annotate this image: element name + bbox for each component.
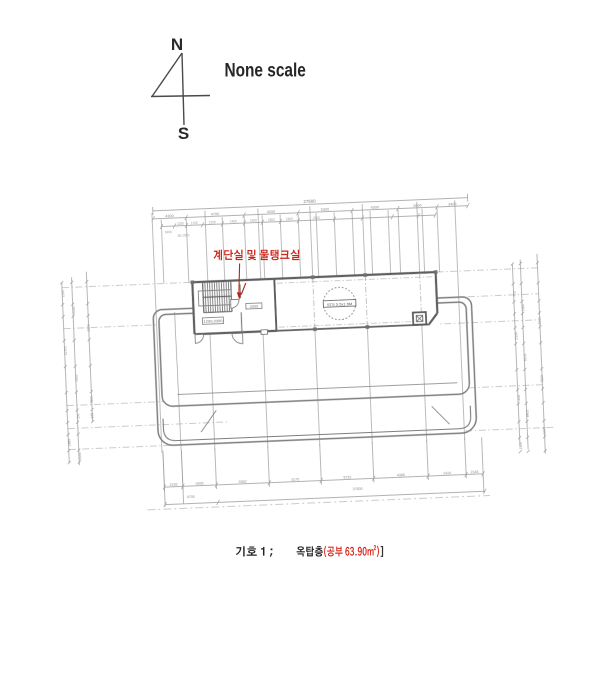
svg-text:3400: 3400 [448, 202, 457, 206]
svg-text:700: 700 [512, 291, 516, 297]
svg-text:27500: 27500 [303, 199, 316, 205]
svg-text:4200: 4200 [267, 210, 276, 214]
svg-text:7800: 7800 [89, 396, 93, 404]
svg-text:2100: 2100 [537, 317, 541, 325]
svg-text:7200: 7200 [540, 375, 544, 383]
svg-text:7200: 7200 [74, 374, 78, 382]
svg-text:1485: 1485 [67, 439, 71, 447]
svg-text:150: 150 [76, 413, 80, 419]
svg-text:5731: 5731 [343, 475, 351, 479]
svg-text:5362: 5362 [239, 479, 247, 483]
svg-text:6105: 6105 [523, 353, 527, 361]
svg-text:1410: 1410 [443, 471, 451, 475]
svg-text:2150: 2150 [72, 306, 76, 314]
svg-text:4700: 4700 [187, 495, 195, 499]
svg-text:3170: 3170 [291, 477, 299, 481]
svg-text:2100: 2100 [519, 442, 523, 450]
svg-text:2145: 2145 [470, 470, 478, 474]
svg-text:S: S [178, 124, 189, 143]
svg-text:None scale: None scale [225, 59, 307, 81]
svg-text:1500: 1500 [286, 217, 293, 221]
svg-text:4700: 4700 [211, 212, 220, 216]
svg-text:2130: 2130 [514, 332, 518, 340]
svg-text:2150: 2150 [78, 452, 82, 460]
svg-text:4300: 4300 [165, 214, 174, 218]
svg-text:80 1500: 80 1500 [178, 233, 190, 237]
svg-text:4305: 4305 [195, 481, 203, 485]
svg-text:2100: 2100 [209, 220, 216, 224]
svg-text:1150: 1150 [177, 221, 184, 225]
svg-text:3300: 3300 [250, 305, 259, 309]
svg-text:1350: 1350 [521, 303, 525, 311]
svg-text:3400: 3400 [165, 230, 172, 234]
svg-text:STS 5.5x1.5M: STS 5.5x1.5M [327, 301, 353, 307]
svg-text:975: 975 [90, 413, 94, 419]
svg-text:4300: 4300 [371, 205, 380, 209]
svg-text:1500: 1500 [250, 218, 257, 222]
svg-text:N: N [171, 35, 183, 54]
svg-text:11700: 11700 [63, 346, 67, 355]
svg-text:4365: 4365 [397, 473, 405, 477]
svg-text:202: 202 [517, 395, 521, 401]
svg-text:1150: 1150 [61, 290, 65, 298]
svg-text:2150: 2150 [169, 482, 177, 486]
svg-text:1200,3300: 1200,3300 [203, 318, 223, 324]
svg-text:37500: 37500 [353, 487, 363, 491]
svg-text:8400: 8400 [525, 409, 529, 417]
svg-text:1700: 1700 [191, 221, 198, 225]
svg-text:1400: 1400 [230, 219, 237, 223]
svg-text:5300: 5300 [321, 207, 330, 211]
svg-text:1500: 1500 [268, 218, 275, 222]
svg-text:2600: 2600 [413, 203, 422, 207]
